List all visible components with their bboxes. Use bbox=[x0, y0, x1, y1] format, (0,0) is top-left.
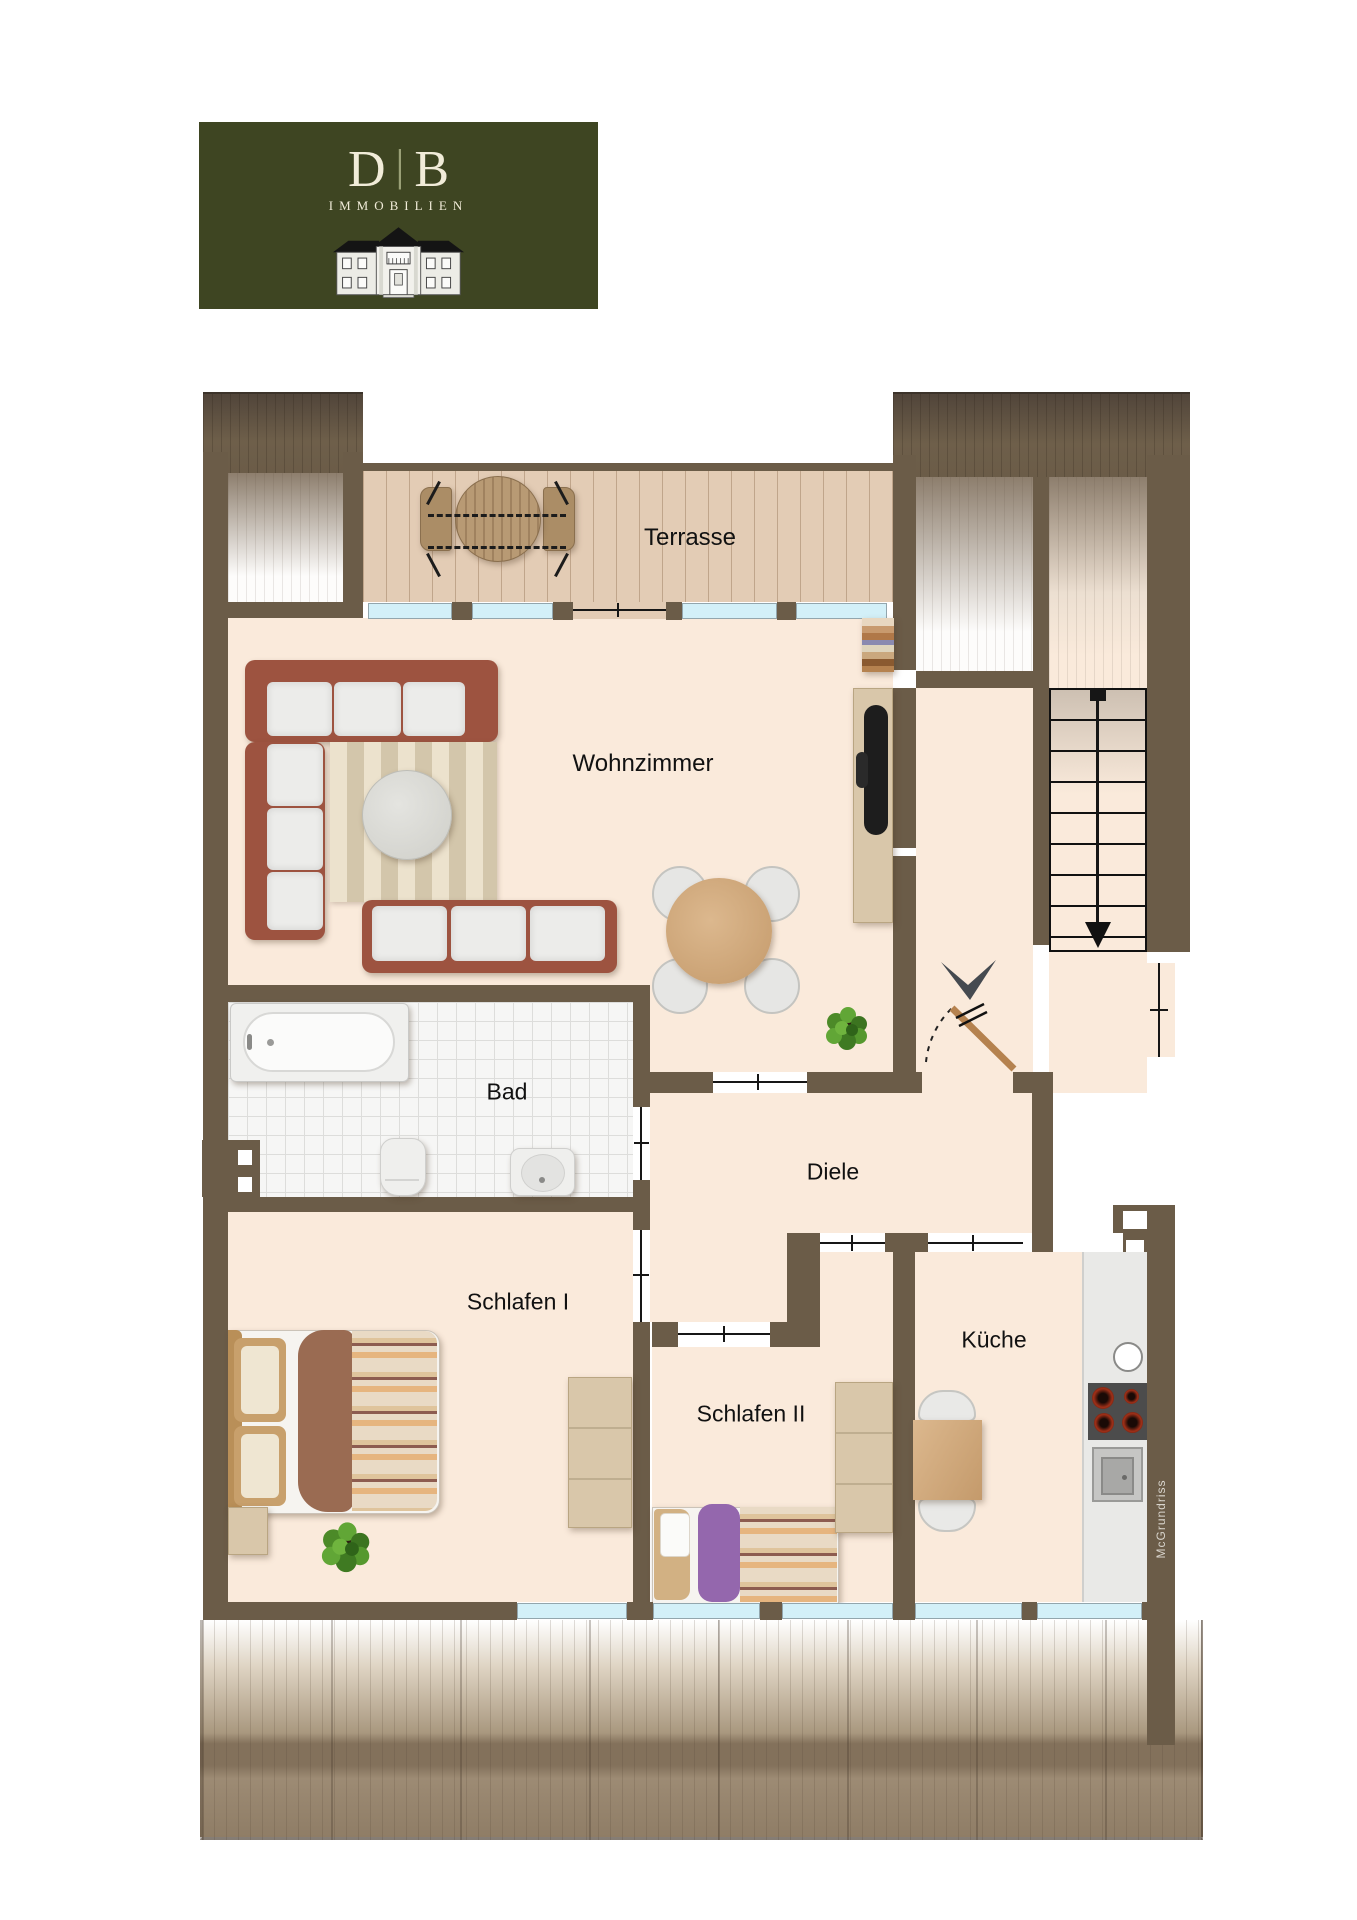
room-label-terrasse: Terrasse bbox=[644, 524, 736, 552]
window-post bbox=[553, 602, 573, 620]
window-post bbox=[666, 602, 682, 620]
bookshelf bbox=[862, 618, 894, 672]
dormer-interior-slope bbox=[228, 473, 343, 602]
door-swing-arc bbox=[926, 1008, 952, 1062]
bottom-window bbox=[653, 1603, 760, 1619]
bathtub-faucet bbox=[247, 1034, 252, 1050]
nightstand bbox=[228, 1507, 268, 1555]
kitchen-square-sink bbox=[1092, 1447, 1143, 1502]
burner bbox=[1094, 1413, 1114, 1433]
sofa-cushion bbox=[267, 872, 323, 930]
sink-basin bbox=[1101, 1457, 1134, 1495]
schlafen2-door-tick bbox=[723, 1326, 725, 1342]
bad-wall-bottom bbox=[228, 1197, 650, 1212]
watermark-text: McGrundriss bbox=[1154, 1479, 1168, 1558]
bad-wall-top bbox=[228, 985, 650, 1002]
wardrobe-schlafen2 bbox=[835, 1382, 893, 1533]
sofa-cushion bbox=[403, 682, 465, 736]
bed2-pillow bbox=[660, 1513, 690, 1557]
wall-schlafen2-top-right bbox=[770, 1322, 820, 1347]
window-post bbox=[1022, 1602, 1037, 1620]
sofa-cushion bbox=[451, 906, 526, 961]
wall-wohnzimmer-diele-a bbox=[633, 1072, 713, 1093]
entrance-door-group bbox=[880, 940, 1060, 1080]
bed-pillow bbox=[234, 1338, 286, 1422]
terrace-window bbox=[368, 603, 452, 619]
wall-diele-right bbox=[1032, 1093, 1053, 1252]
bed2-striped-blanket bbox=[740, 1507, 837, 1602]
terrace-door-tick bbox=[617, 603, 619, 617]
room-label-schlafen2: Schlafen II bbox=[697, 1401, 806, 1428]
diele-floor-lower bbox=[650, 1233, 787, 1322]
schlafen2-nook-floor bbox=[820, 1252, 893, 1347]
wall-schlafen2-top-left bbox=[652, 1322, 678, 1347]
nook-door-tick bbox=[851, 1235, 853, 1251]
sofa-cushion bbox=[267, 808, 323, 870]
bad-door-tick bbox=[634, 1142, 649, 1144]
schlafen1-door-line bbox=[640, 1230, 642, 1322]
roof-block-right bbox=[893, 392, 1190, 477]
terrace-chair-arm-line bbox=[428, 546, 566, 549]
dormer-wall-left bbox=[203, 452, 228, 618]
plant-icon bbox=[308, 1512, 382, 1586]
wall-gap bbox=[893, 670, 916, 688]
sofa-cushion bbox=[530, 906, 605, 961]
room-label-schlafen1: Schlafen I bbox=[467, 1289, 569, 1316]
wall-gap bbox=[893, 848, 916, 856]
floorplan-page: D|B IMMOBILIEN bbox=[0, 0, 1357, 1920]
staircase-down-arrow-icon bbox=[1085, 922, 1111, 948]
window-post bbox=[760, 1602, 782, 1620]
room-label-kueche: Küche bbox=[961, 1327, 1026, 1354]
wall-schlafen1-right bbox=[633, 1322, 650, 1602]
terrace-window bbox=[682, 603, 777, 619]
bottom-window bbox=[517, 1603, 627, 1619]
room-label-wohnzimmer: Wohnzimmer bbox=[573, 750, 714, 778]
terrace-window bbox=[472, 603, 553, 619]
bottom-wall-left bbox=[227, 1602, 517, 1620]
dining-table bbox=[666, 878, 772, 984]
bathtub bbox=[230, 1003, 409, 1082]
entrance-arrow-icon bbox=[941, 960, 996, 1000]
dormer-wall-bottom bbox=[203, 602, 363, 618]
terrace-window bbox=[796, 603, 887, 619]
bed2-purple-blanket bbox=[698, 1504, 740, 1602]
sofa-cushion bbox=[267, 682, 332, 736]
roof-bottom bbox=[200, 1620, 1203, 1840]
floor-plan: Terrasse Wohnzimmer Bad Diele Schlafen I… bbox=[0, 0, 1357, 1920]
burner bbox=[1124, 1389, 1139, 1404]
landing-door-tick bbox=[1150, 1009, 1168, 1011]
wohnzimmer-diele-door-tick bbox=[757, 1074, 759, 1090]
stairroom-slope-left bbox=[914, 477, 1033, 671]
bottom-window bbox=[1037, 1603, 1142, 1619]
kueche-wall-window bbox=[1123, 1211, 1147, 1229]
staircase-walkline bbox=[1096, 688, 1099, 928]
toilet bbox=[380, 1138, 426, 1196]
burner bbox=[1092, 1387, 1114, 1409]
wall-bad-right-lower bbox=[633, 1180, 650, 1230]
stairroom-wall-right bbox=[1147, 455, 1190, 952]
stairroom-wall-mid bbox=[1033, 477, 1049, 945]
terrace-chair-left bbox=[420, 487, 452, 551]
wall-diele-bottom-mid bbox=[885, 1233, 928, 1252]
plant-icon bbox=[814, 998, 878, 1062]
bed-striped-blanket bbox=[352, 1331, 437, 1511]
entrance-door-leaf bbox=[952, 1008, 1014, 1069]
room-label-diele: Diele bbox=[807, 1159, 859, 1186]
sofa-cushion bbox=[334, 682, 401, 736]
chimney-vent bbox=[238, 1177, 252, 1192]
sink-bowl bbox=[521, 1154, 565, 1192]
kitchen-table bbox=[913, 1420, 982, 1500]
wardrobe-schlafen1 bbox=[568, 1377, 632, 1528]
outer-wall-left bbox=[203, 618, 228, 1620]
toilet-seat-line bbox=[385, 1179, 419, 1181]
burner bbox=[1122, 1412, 1143, 1433]
chimney-vent bbox=[238, 1150, 252, 1165]
staircase-start-marker bbox=[1090, 688, 1106, 701]
sink-drain bbox=[539, 1177, 545, 1183]
stove bbox=[1088, 1383, 1147, 1440]
coffee-table bbox=[362, 770, 452, 860]
bathtub-inner bbox=[243, 1012, 395, 1072]
dormer-wall-right bbox=[343, 452, 363, 618]
bed-pillow bbox=[234, 1426, 286, 1506]
kueche-door-line bbox=[928, 1242, 1023, 1244]
sofa-cushion bbox=[372, 906, 447, 961]
window-post bbox=[893, 1602, 915, 1620]
stairroom-wall-horizontal bbox=[916, 671, 1033, 688]
window-post bbox=[627, 1602, 653, 1620]
bottom-window bbox=[915, 1603, 1022, 1619]
wall-schlafen2-kueche bbox=[893, 1252, 915, 1602]
bottom-wall-right-post bbox=[1142, 1602, 1175, 1620]
kitchen-round-sink bbox=[1113, 1342, 1143, 1372]
kueche-door-tick bbox=[972, 1235, 974, 1251]
bathtub-drain bbox=[267, 1039, 274, 1046]
tv-stand bbox=[856, 752, 868, 788]
sink-drain bbox=[1122, 1475, 1127, 1480]
terrace-chair-right bbox=[543, 487, 575, 551]
schlafen1-door-tick bbox=[633, 1274, 649, 1276]
window-post bbox=[777, 602, 796, 620]
stairroom-slope-right bbox=[1049, 477, 1147, 688]
bottom-window bbox=[782, 1603, 893, 1619]
window-post bbox=[452, 602, 472, 620]
stair-landing-floor-right bbox=[1049, 952, 1147, 1093]
bathroom-sink bbox=[510, 1148, 575, 1196]
terrace-door-line bbox=[573, 609, 666, 611]
room-label-bad: Bad bbox=[487, 1079, 528, 1106]
terrace-table bbox=[455, 476, 541, 562]
bed-runner-blanket bbox=[298, 1330, 354, 1512]
terrace-chair-arm-line bbox=[428, 514, 566, 517]
sofa-cushion bbox=[267, 744, 323, 806]
wohnzimmer-diele-door-line bbox=[713, 1081, 807, 1083]
